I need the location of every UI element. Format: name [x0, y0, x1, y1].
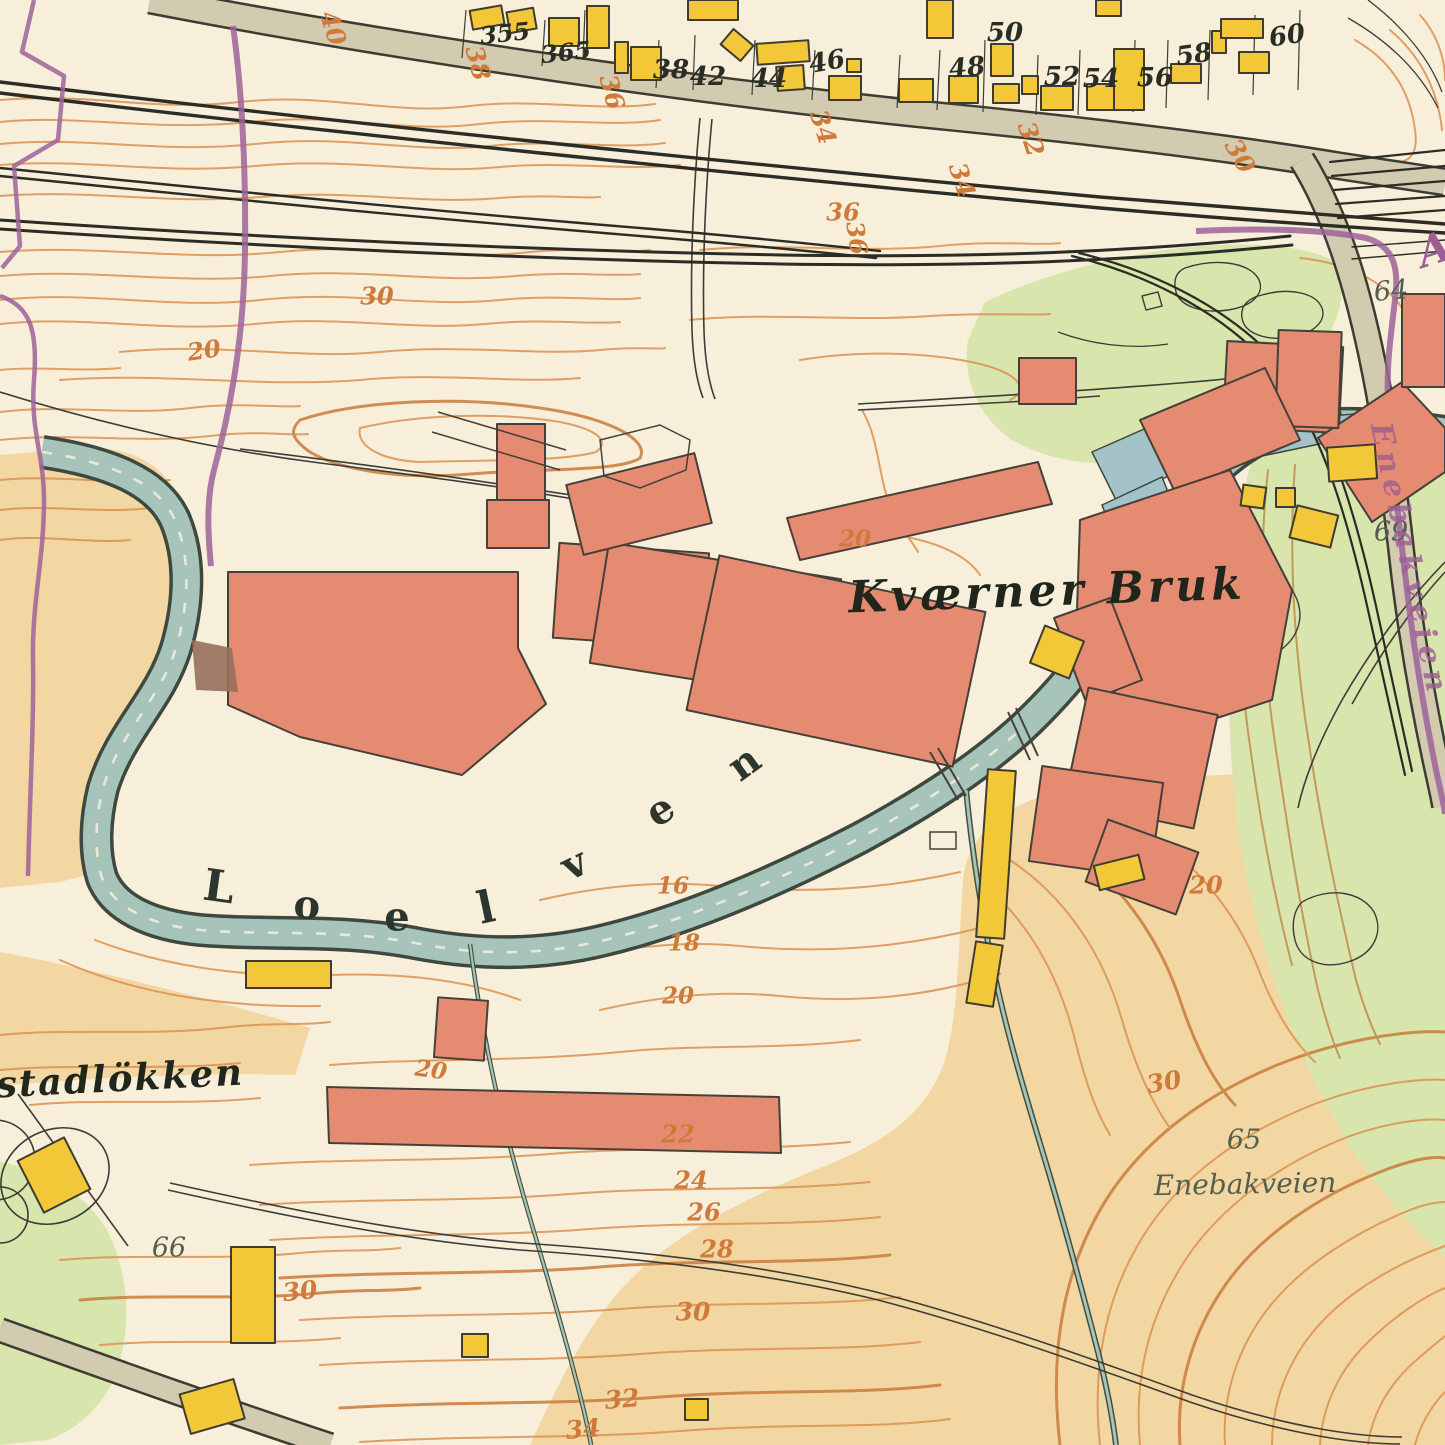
map-sheet: 3553653842444648505254565860403836343234…	[0, 0, 1445, 1445]
map-canvas	[0, 0, 1445, 1445]
